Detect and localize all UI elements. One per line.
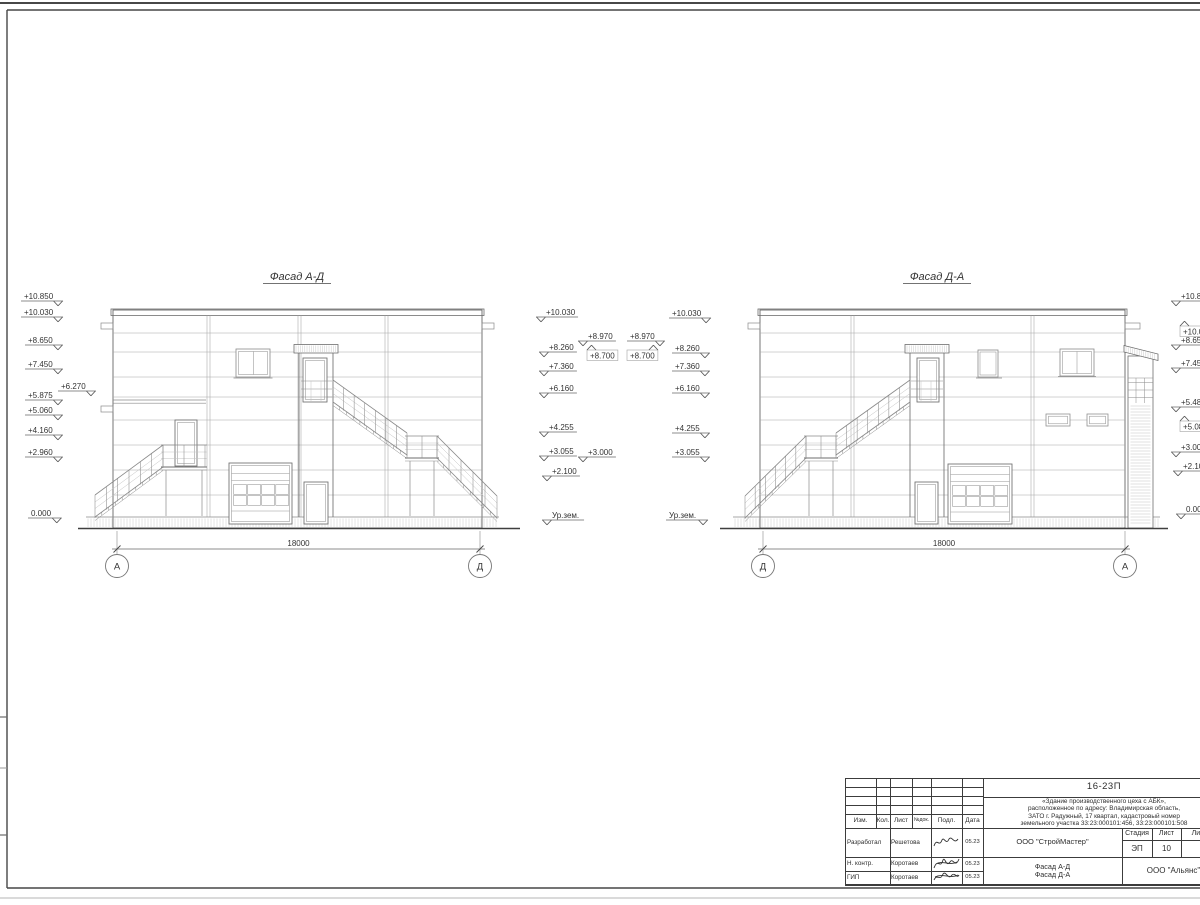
elevation-mark: +2.100 [1173,462,1200,476]
project-description-line: расположенное по адресу: Владимирская об… [1028,805,1180,812]
dimension-lines: 18000АД18000ДА [106,531,1137,578]
elevation-mark: +10.030 [669,309,711,323]
axis-bubble: А [1114,555,1137,578]
tb-header-col: №док. [912,814,931,828]
annotation-text: +10.030 [672,309,702,318]
elevation-mark: +7.450 [1171,359,1200,373]
elevation-mark: +8.650 [25,336,63,350]
annotation-text: +5.080 [1183,422,1200,431]
annotation-text: А [1122,562,1129,573]
elevation-mark: +4.255 [672,424,710,438]
annotation-text: +10.850 [24,292,54,301]
personnel-date: 05.23 [962,871,983,885]
annotation-text: +7.450 [1181,359,1200,368]
elevation-mark: +10.850 [1171,292,1200,306]
elevation-mark: +2.100 [542,467,580,481]
tb-header-col: Подл. [931,814,962,828]
elevation-mark: +7.360 [539,362,577,376]
annotation-text: +3.000 [1181,443,1200,452]
doc-number: 16-23П [983,778,1200,797]
personnel-name: Коротаев [891,871,930,885]
elevation-mark: +4.160 [25,426,63,440]
stage-table-header: Стадия [1122,828,1152,840]
dimension: 18000ДА [752,531,1137,578]
stage-table-header: Лист [1152,828,1181,840]
elevation-mark: +8.970 [627,332,665,346]
signature [933,870,961,886]
elevation-mark: +3.000 [1171,443,1200,457]
personnel-name: Коротаев [891,857,930,871]
annotation-text: Фасад А-Д [270,271,325,283]
annotation-text: Ур.зем. [552,511,579,520]
elevation-mark: +10.030 [21,308,63,322]
elevation-mark: 0.000 [1176,505,1200,519]
elevation-mark: +3.000 [578,448,616,462]
elevation-mark: +2.960 [25,448,63,462]
annotation-text: +10.030 [546,308,576,317]
customer-org: ООО "Альянс" [1122,857,1200,885]
elevation-mark: +8.970 [578,332,616,346]
axis-bubble: Д [469,555,492,578]
elevation-mark: +7.450 [25,360,63,374]
elevation-mark: +5.875 [25,391,63,405]
elevation-mark: +5.080 [1180,416,1200,431]
annotation-text: Ур.зем. [669,511,696,520]
annotation-text: +6.160 [675,384,700,393]
project-description: «Здание производственного цеха с АБК»,ра… [983,797,1200,828]
facade-titles: Фасад А-ДФасад Д-А [263,271,971,284]
project-description-line: ЗАТО г. Радужный, 17 квартал, кадастровы… [1028,813,1180,820]
stage-table-value: 10 [1152,840,1181,857]
elevation-mark: +3.055 [539,447,577,461]
personnel-role: Н. контр. [847,857,889,871]
title-block-line [983,797,1200,798]
annotation-text: А [114,562,121,573]
title-block: 16-23П «Здание производственного цеха с … [845,778,1200,886]
elevation-mark: +10.030 [1180,321,1200,336]
annotation-text: +2.960 [28,448,53,457]
title-block-line [931,778,932,885]
elevation-mark: +10.850 [21,292,63,306]
annotation-text: +4.255 [675,424,700,433]
annotation-text: +2.100 [552,467,577,476]
elevation-mark: +5.060 [25,406,63,420]
elevation-mark: +7.360 [672,362,710,376]
annotation-text: 0.000 [1186,505,1200,514]
annotation-text: +2.100 [1183,462,1200,471]
annotation-text: +8.700 [630,351,655,360]
dimension: 18000АД [106,531,492,578]
drawing-sheet: Фасад А-ДФасад Д-А+10.850+10.030+8.650+7… [0,0,1200,900]
annotation-text: +5.485 [1181,398,1200,407]
sheet-title-line: Фасад Д-А [1035,871,1070,879]
elevation-mark: +8.260 [672,344,710,358]
annotation-text: 18000 [287,539,310,548]
elevation-marks: +10.850+10.030+8.650+7.450+6.270+5.875+5… [21,292,1200,525]
annotation-text: +7.360 [549,362,574,371]
annotation-text: +6.160 [549,384,574,393]
tb-header-col: Дата [962,814,983,828]
annotation-text: +8.970 [588,332,613,341]
elevation-mark: +8.650 [1171,336,1200,350]
annotation-text: +8.700 [590,351,615,360]
stage-table-value: 1 [1181,840,1200,857]
annotation-text: +8.260 [675,344,700,353]
elevation-mark: Ур.зем. [542,511,584,525]
elevation-mark: +4.255 [539,423,577,437]
annotation-text: +4.255 [549,423,574,432]
elevation-mark: +8.260 [539,343,577,357]
annotation-text: +10.030 [24,308,54,317]
annotation-text: +3.055 [549,447,574,456]
elevation-mark: +8.700 [587,345,618,360]
tb-header-col: Кол. [876,814,890,828]
tb-header-col: Лист [890,814,912,828]
elevation-mark: Ур.зем. [666,511,708,525]
project-description-line: земельного участка 33:23:000101:456, 33:… [1021,820,1188,827]
annotation-text: +3.055 [675,448,700,457]
annotation-text: +8.260 [549,343,574,352]
designer-org: ООО "СтройМастер" [983,828,1122,857]
personnel-date: 05.23 [962,828,983,857]
annotation-text: +8.650 [1181,336,1200,345]
elevation-mark: +3.055 [672,448,710,462]
facade-ad-drawing [78,309,520,529]
facade-title: Фасад А-Д [263,271,331,284]
annotation-text: Д [477,562,484,573]
elevation-mark: +10.030 [536,308,578,322]
annotation-text: +8.970 [630,332,655,341]
tb-header-col: Изм. [845,814,876,828]
annotation-text: +10.850 [1181,292,1200,301]
annotation-text: +5.875 [28,391,53,400]
stage-table-value: ЭП [1122,840,1152,857]
facade-drawing-canvas: Фасад А-ДФасад Д-А+10.850+10.030+8.650+7… [0,0,1200,900]
facade-title: Фасад Д-А [903,271,971,284]
elevation-mark: 0.000 [28,509,62,523]
personnel-role: Разработал [847,828,889,857]
stage-table-header: Листов [1181,828,1200,840]
elevation-mark: +6.160 [539,384,577,398]
facade-da-drawing [720,309,1168,529]
signature [933,835,961,851]
personnel-date: 05.23 [962,857,983,871]
axis-bubble: Д [752,555,775,578]
annotation-text: +4.160 [28,426,53,435]
sheet-title: Фасад А-ДФасад Д-А [983,857,1122,885]
elevation-mark: +6.160 [672,384,710,398]
title-block-line [845,778,1200,779]
elevation-mark: +8.700 [627,345,658,360]
personnel-role: ГИП [847,871,889,885]
annotation-text: +6.270 [61,382,86,391]
annotation-text: Д [760,562,767,573]
annotation-text: +5.060 [28,406,53,415]
annotation-text: +8.650 [28,336,53,345]
annotation-text: +7.450 [28,360,53,369]
annotation-text: 18000 [933,539,956,548]
axis-bubble: А [106,555,129,578]
personnel-name: Решетова [891,828,930,857]
annotation-text: +3.000 [588,448,613,457]
elevation-mark: +5.485 [1171,398,1200,412]
annotation-text: 0.000 [31,509,52,518]
annotation-text: Фасад Д-А [910,271,964,283]
annotation-text: +7.360 [675,362,700,371]
elevation-mark: +6.270 [58,382,96,396]
